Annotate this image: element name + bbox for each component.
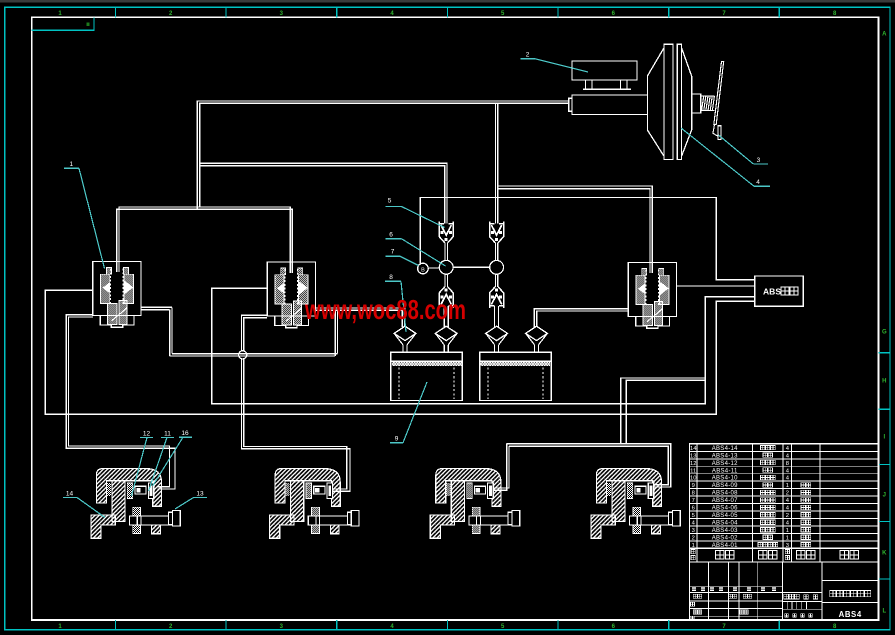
svg-text:5: 5 <box>388 198 392 205</box>
svg-text:ABS4-08: ABS4-08 <box>712 491 738 497</box>
svg-text:16: 16 <box>181 430 189 437</box>
svg-text:7: 7 <box>692 498 695 504</box>
svg-text:ABS4-11: ABS4-11 <box>712 468 738 474</box>
svg-text:9: 9 <box>395 436 399 443</box>
svg-text:ABS4-10: ABS4-10 <box>712 476 738 482</box>
svg-text:B: B <box>421 267 425 273</box>
svg-text:11: 11 <box>690 468 696 474</box>
svg-text:7: 7 <box>391 249 395 256</box>
svg-text:11: 11 <box>164 430 171 437</box>
svg-text:1: 1 <box>69 161 73 168</box>
svg-text:www,woc88.com: www,woc88.com <box>304 294 466 325</box>
svg-text:12: 12 <box>143 430 151 437</box>
svg-text:ABS4-14: ABS4-14 <box>712 446 738 452</box>
svg-text:3: 3 <box>786 543 789 549</box>
svg-text:ABS4-04: ABS4-04 <box>712 520 738 526</box>
svg-text:13: 13 <box>196 490 204 497</box>
svg-text:2: 2 <box>786 491 789 497</box>
svg-text:K: K <box>882 551 887 557</box>
svg-text:ABS: ABS <box>763 286 781 296</box>
svg-text:ABS4-13: ABS4-13 <box>712 453 738 459</box>
svg-text:J: J <box>883 493 886 499</box>
svg-text:ABS4-03: ABS4-03 <box>712 528 738 534</box>
svg-text:3: 3 <box>757 157 761 164</box>
svg-text:2: 2 <box>786 513 789 519</box>
svg-text:1: 1 <box>692 543 695 549</box>
svg-text:ABS4-06: ABS4-06 <box>712 506 738 512</box>
svg-text:ABS4-02: ABS4-02 <box>712 535 738 541</box>
svg-text:10: 10 <box>690 476 696 482</box>
svg-text:8: 8 <box>389 274 393 281</box>
svg-text:3: 3 <box>692 528 695 534</box>
svg-text:A: A <box>882 32 887 38</box>
svg-text:6: 6 <box>389 232 393 239</box>
svg-text:G: G <box>882 330 887 336</box>
svg-text:5: 5 <box>692 513 695 519</box>
svg-text:L: L <box>882 609 886 615</box>
svg-text:1: 1 <box>786 528 789 534</box>
svg-text:1: 1 <box>786 535 789 541</box>
svg-text:H: H <box>882 379 886 385</box>
svg-text:ABS4: ABS4 <box>839 610 862 619</box>
svg-text:2: 2 <box>526 52 530 59</box>
svg-text:2: 2 <box>692 535 695 541</box>
svg-text:13: 13 <box>690 453 696 459</box>
svg-text:12: 12 <box>690 461 696 467</box>
svg-text:9: 9 <box>692 483 695 489</box>
svg-text:14: 14 <box>690 446 697 452</box>
svg-text:ABS4-09: ABS4-09 <box>712 483 738 489</box>
svg-text:ABS4-12: ABS4-12 <box>712 461 738 467</box>
svg-text:ABS4-07: ABS4-07 <box>712 498 738 504</box>
svg-text:4: 4 <box>756 179 760 186</box>
svg-text:8: 8 <box>692 491 695 497</box>
svg-text:1: 1 <box>786 483 789 489</box>
svg-text:ABS4-05: ABS4-05 <box>712 513 738 519</box>
svg-text:8: 8 <box>786 461 789 467</box>
svg-text:ABS4-01: ABS4-01 <box>712 543 738 549</box>
svg-text:6: 6 <box>692 506 695 512</box>
svg-text:14: 14 <box>66 490 74 497</box>
